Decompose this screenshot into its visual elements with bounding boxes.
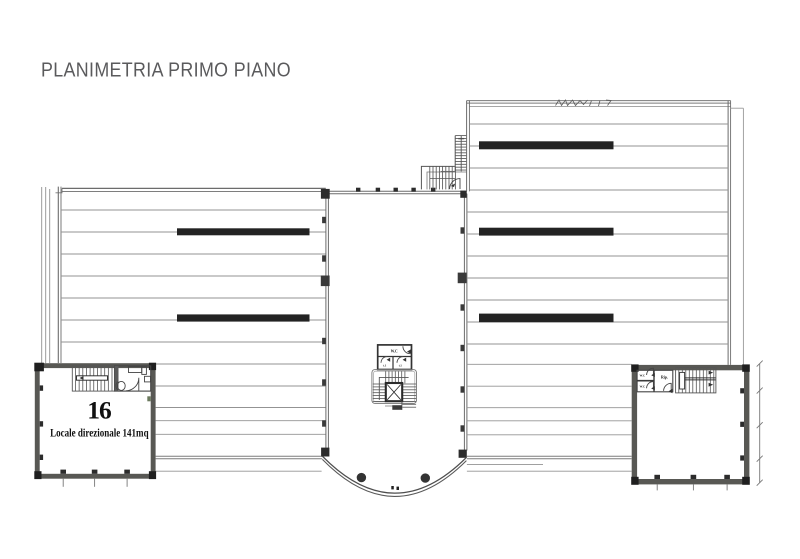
svg-text:Locale direzionale 141mq: Locale direzionale 141mq — [50, 428, 149, 440]
svg-text:W.C: W.C — [640, 385, 646, 389]
svg-text:W.C: W.C — [640, 374, 646, 378]
svg-text:PLANIMETRIA PRIMO PIANO: PLANIMETRIA PRIMO PIANO — [41, 59, 291, 82]
svg-text:Rip.: Rip. — [661, 375, 668, 379]
svg-text:W.C: W.C — [391, 349, 398, 353]
svg-text:16: 16 — [87, 395, 112, 424]
